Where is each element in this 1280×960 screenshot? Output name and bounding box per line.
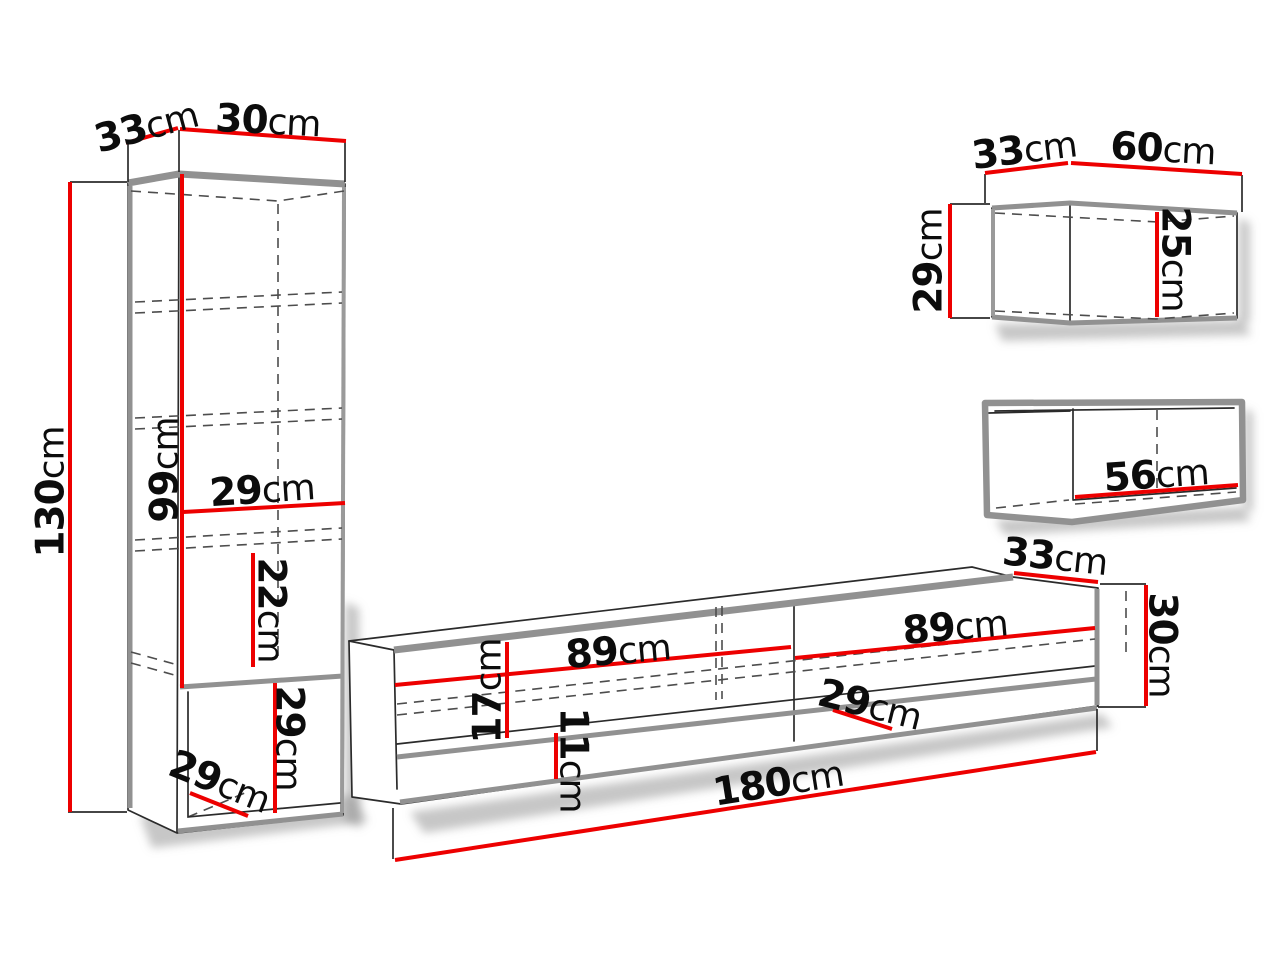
dim-label-tall-niche-height: 29cm	[266, 685, 311, 790]
dim-label-wcl-width: 60cm	[1109, 124, 1216, 174]
dim-label-tall-depth: 33cm	[90, 92, 203, 163]
dim-label-tall-shelf-spacing: 22cm	[248, 557, 293, 662]
dim-label-tv-niche-height: 11cm	[550, 707, 595, 812]
dim-label-tv-height: 30cm	[1139, 592, 1184, 697]
diagram-canvas: 33cm 30cm 130cm 99cm 29cm 22cm 29cm 29cm	[0, 0, 1280, 960]
dim-label-tv-total-width: 180cm	[710, 751, 847, 816]
dim-label-wcs-inner-width: 56cm	[1102, 449, 1210, 501]
tall-cabinet: 33cm 30cm 130cm 99cm 29cm 22cm 29cm 29cm	[29, 92, 346, 833]
dim-label-tv-flap-height: 17cm	[466, 638, 511, 743]
wall-cabinet-small: 56cm	[985, 402, 1243, 522]
dim-label-tall-width: 30cm	[214, 96, 321, 146]
dim-label-tall-inner-width: 29cm	[208, 464, 316, 516]
dim-label-tall-height-total: 130cm	[29, 426, 74, 557]
dim-label-wcl-inner-height: 25cm	[1152, 206, 1197, 311]
furniture-dimension-diagram: 33cm 30cm 130cm 99cm 29cm 22cm 29cm 29cm	[0, 0, 1280, 960]
dim-label-wcl-height: 29cm	[907, 208, 952, 313]
wall-cabinet-large: 33cm 60cm 29cm 25cm	[907, 121, 1242, 323]
dim-label-wcl-depth: 33cm	[969, 121, 1079, 178]
dim-label-tall-height-upper: 99cm	[143, 417, 188, 522]
